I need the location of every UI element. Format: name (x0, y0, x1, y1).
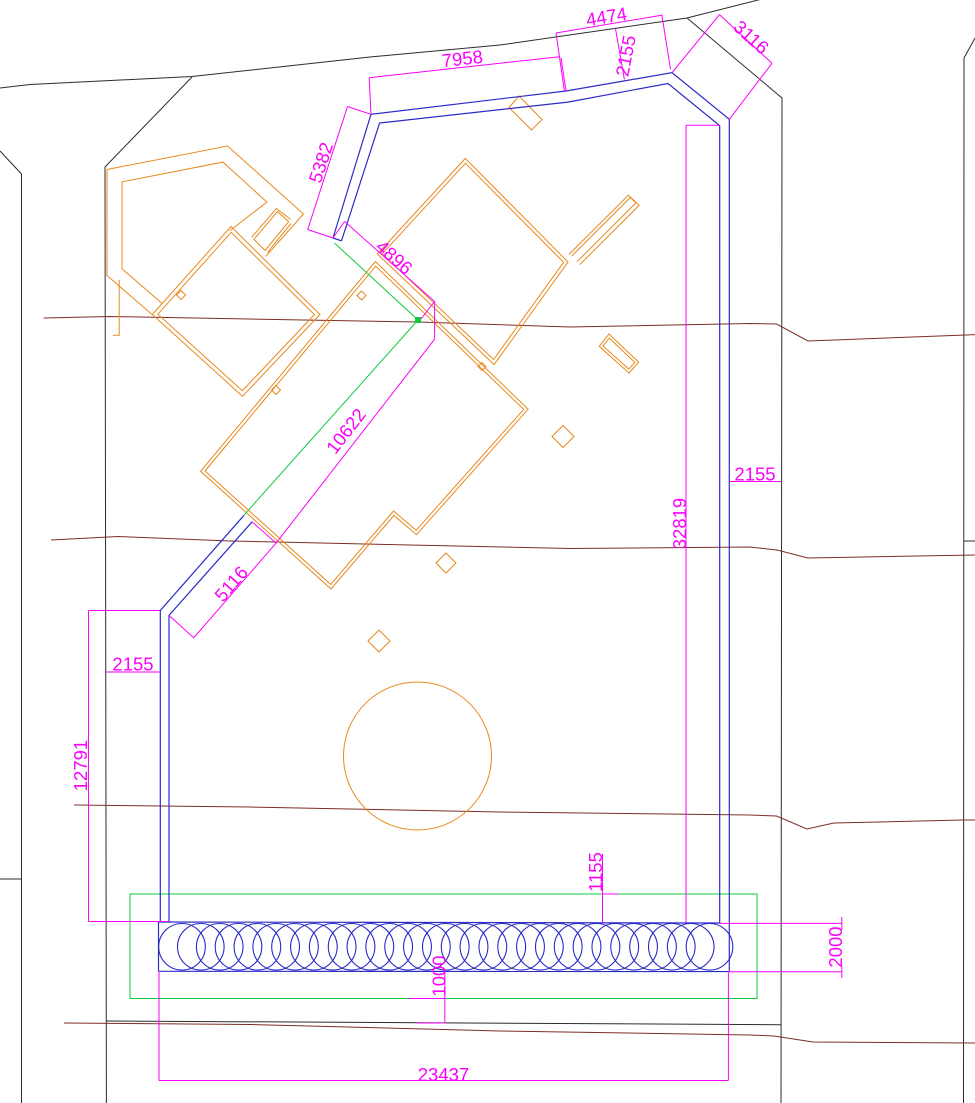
svg-text:2155: 2155 (611, 34, 639, 78)
svg-text:5116: 5116 (210, 562, 252, 606)
svg-text:5382: 5382 (304, 140, 337, 186)
svg-text:32819: 32819 (669, 498, 690, 549)
svg-text:4474: 4474 (584, 3, 628, 30)
svg-text:12791: 12791 (70, 740, 91, 791)
svg-text:2155: 2155 (112, 654, 153, 675)
svg-text:3116: 3116 (730, 16, 774, 58)
svg-text:1000: 1000 (429, 955, 450, 996)
svg-text:2000: 2000 (825, 926, 846, 967)
svg-text:4896: 4896 (372, 236, 417, 279)
svg-text:7958: 7958 (441, 46, 484, 71)
svg-text:23437: 23437 (418, 1064, 469, 1085)
svg-text:2155: 2155 (734, 464, 775, 485)
svg-text:1155: 1155 (585, 852, 606, 892)
